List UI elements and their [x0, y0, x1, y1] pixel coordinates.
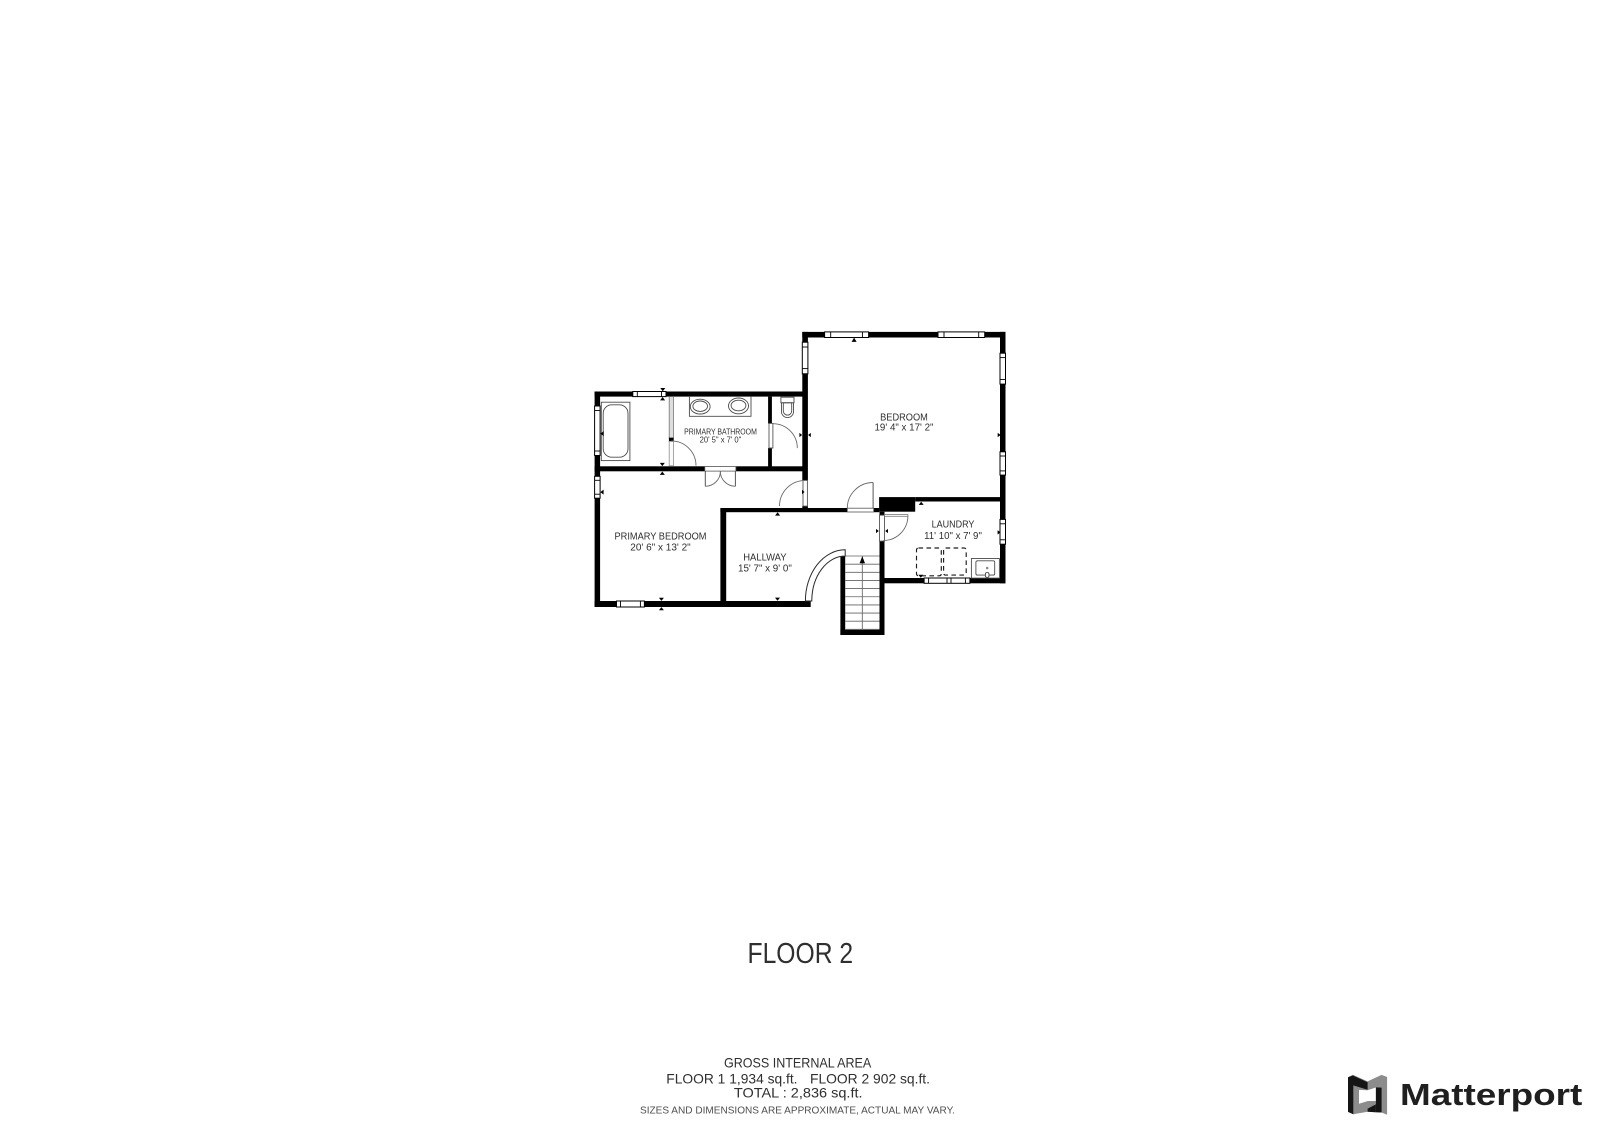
svg-text:TOTAL : 2,836 sq.ft.: TOTAL : 2,836 sq.ft. — [734, 1085, 863, 1101]
svg-text:LAUNDRY: LAUNDRY — [932, 520, 975, 531]
svg-text:PRIMARY BEDROOM: PRIMARY BEDROOM — [615, 532, 707, 543]
svg-text:20' 5" x 7' 0": 20' 5" x 7' 0" — [700, 436, 742, 445]
svg-text:SIZES AND DIMENSIONS ARE APPRO: SIZES AND DIMENSIONS ARE APPROXIMATE, AC… — [640, 1106, 955, 1117]
svg-text:FLOOR 2: FLOOR 2 — [748, 938, 854, 970]
svg-text:15' 7" x 9' 0": 15' 7" x 9' 0" — [738, 563, 792, 574]
svg-text:11' 10" x 7' 9": 11' 10" x 7' 9" — [924, 531, 982, 542]
svg-text:20' 6" x 13' 2": 20' 6" x 13' 2" — [630, 542, 691, 553]
svg-text:Matterport: Matterport — [1400, 1078, 1582, 1112]
svg-text:HALLWAY: HALLWAY — [743, 553, 787, 564]
svg-text:19' 4" x 17' 2": 19' 4" x 17' 2" — [875, 423, 934, 434]
svg-text:GROSS INTERNAL AREA: GROSS INTERNAL AREA — [724, 1054, 872, 1070]
